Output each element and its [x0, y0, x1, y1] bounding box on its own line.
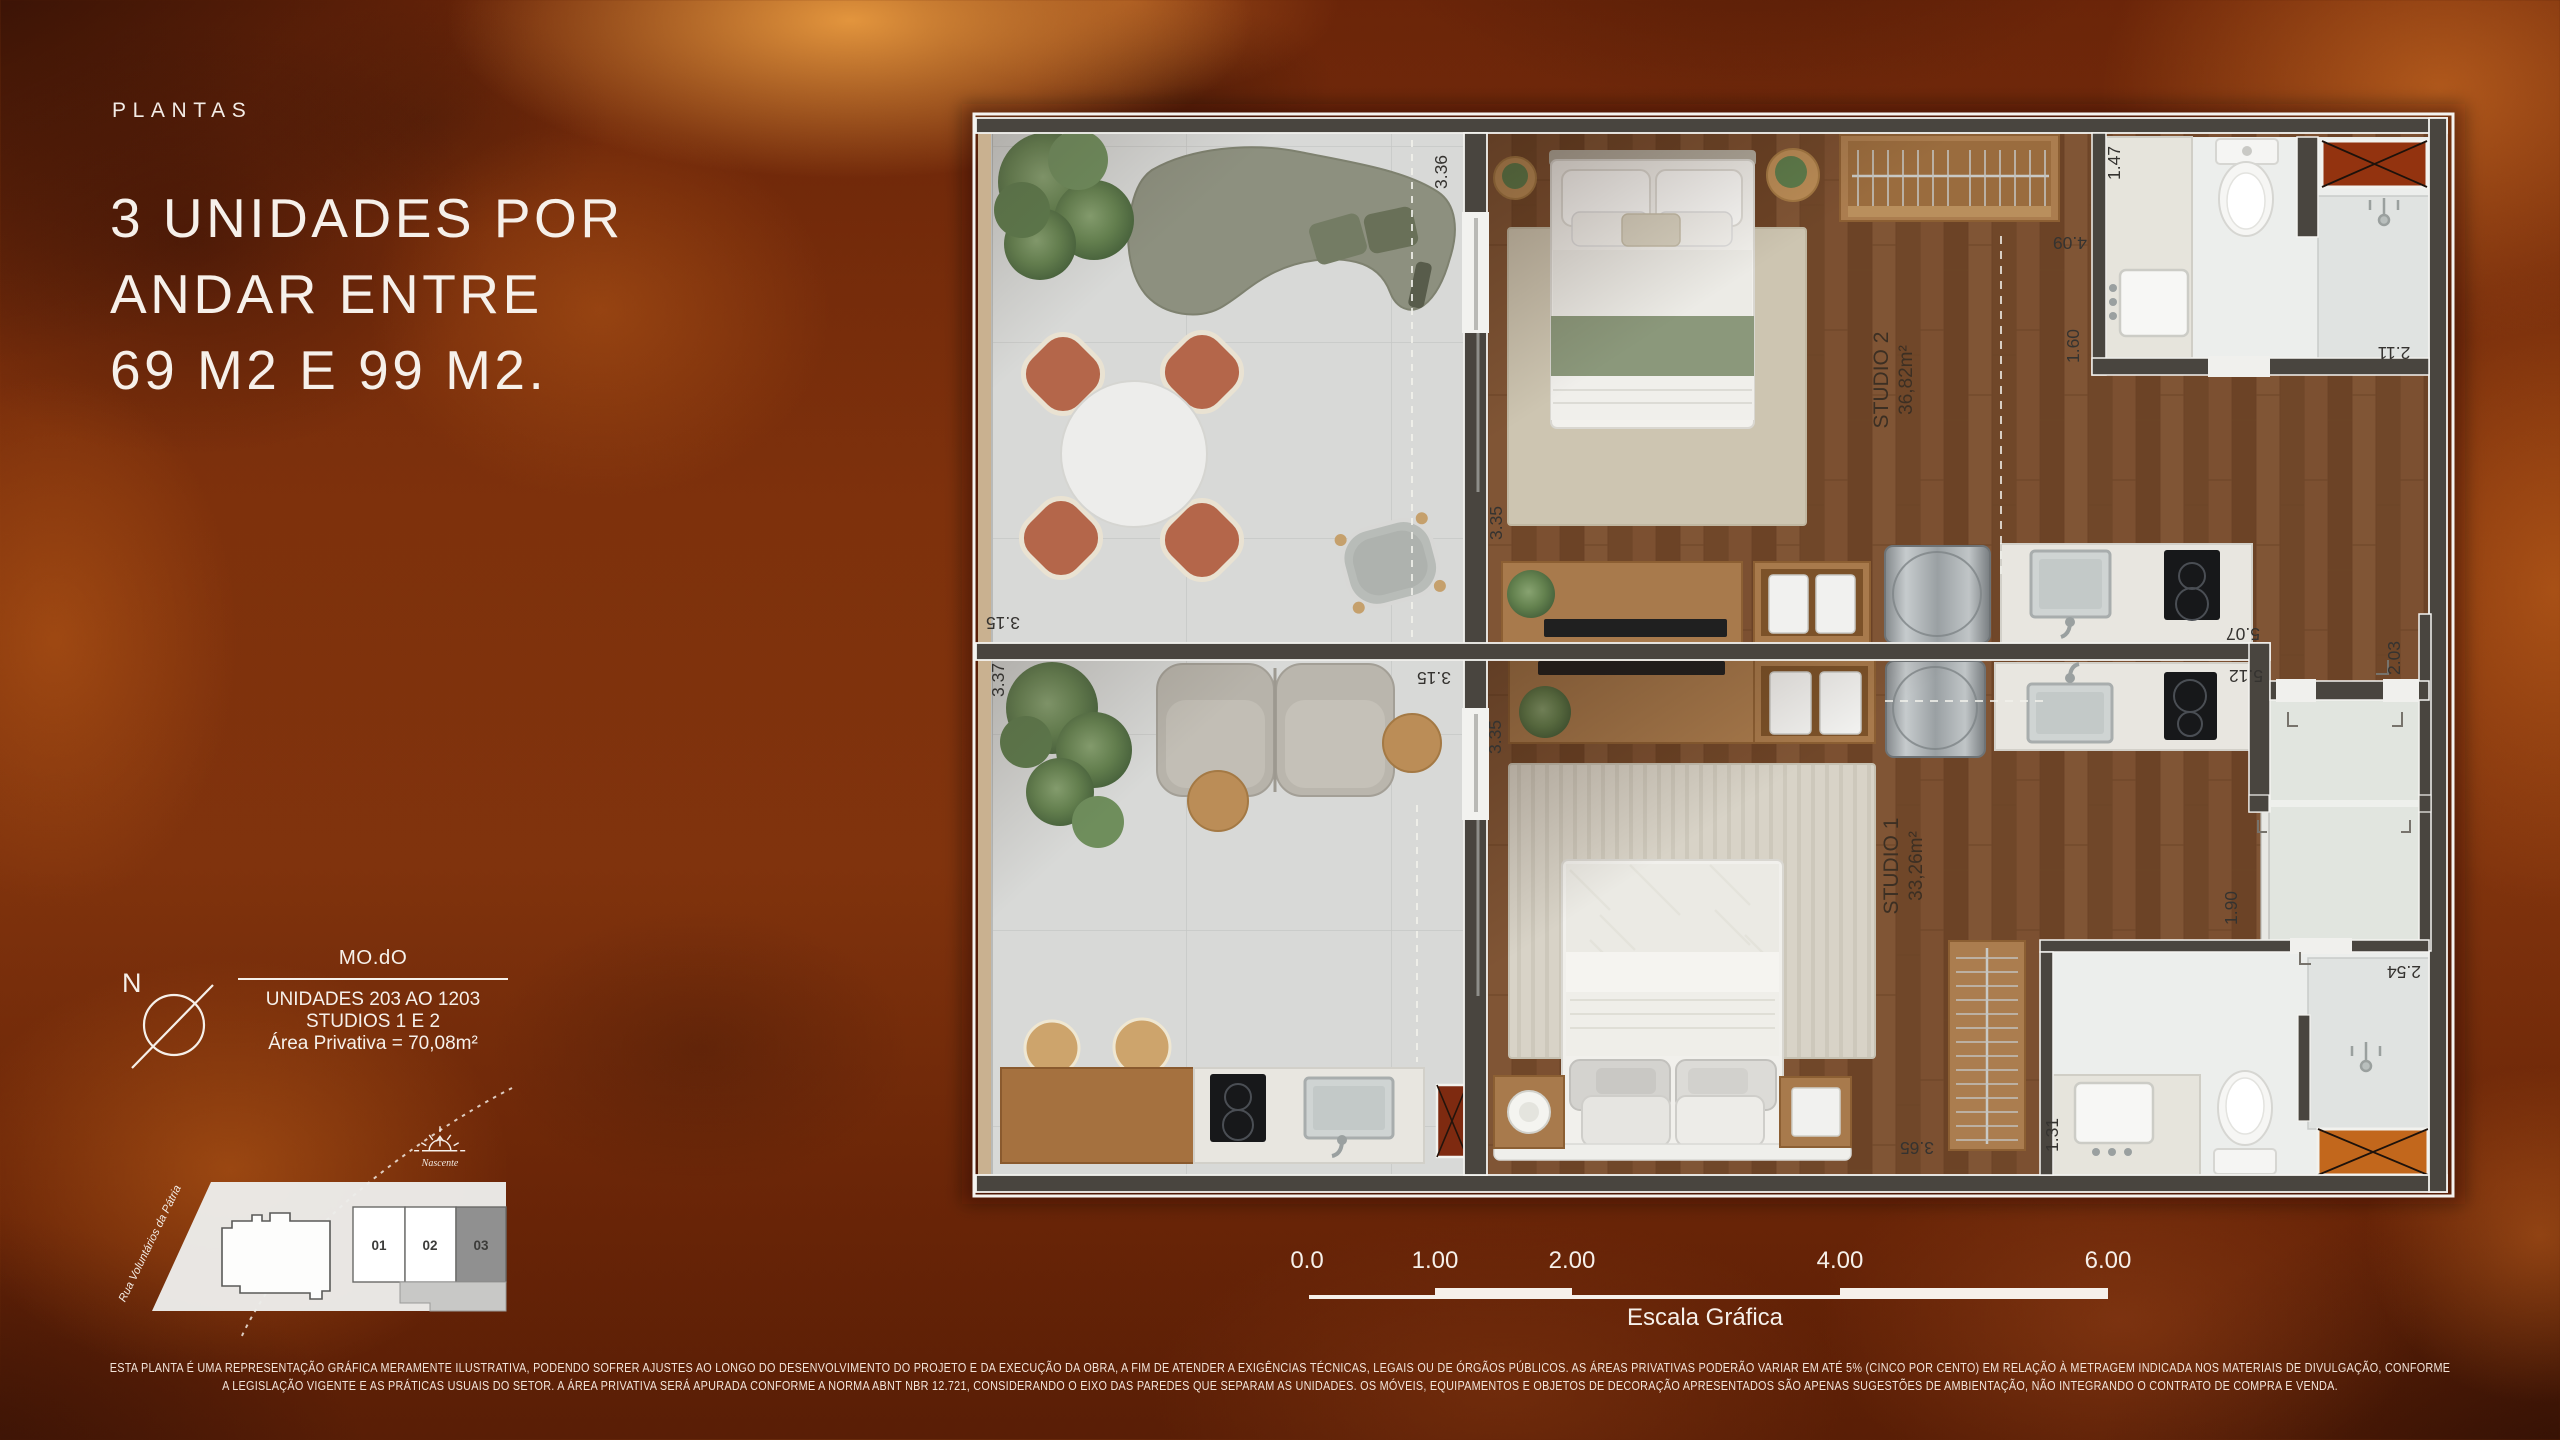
svg-text:3.15: 3.15 [986, 613, 1020, 633]
svg-text:1.31: 1.31 [2042, 1118, 2062, 1152]
svg-text:3.15: 3.15 [1417, 668, 1451, 688]
svg-text:1.60: 1.60 [2063, 329, 2083, 363]
svg-text:2.54: 2.54 [2387, 962, 2421, 982]
svg-text:3.37: 3.37 [988, 663, 1008, 697]
svg-text:5.12: 5.12 [2229, 666, 2263, 686]
svg-text:3.65: 3.65 [1900, 1138, 1934, 1158]
svg-text:1.47: 1.47 [2104, 146, 2124, 180]
svg-text:3.36: 3.36 [1431, 155, 1451, 189]
svg-text:3.35: 3.35 [1485, 720, 1505, 754]
svg-text:4.09: 4.09 [2053, 233, 2087, 253]
svg-text:1.90: 1.90 [2221, 891, 2241, 925]
svg-text:5.07: 5.07 [2226, 624, 2260, 644]
svg-text:2.11: 2.11 [2378, 343, 2411, 363]
svg-text:33,26m²: 33,26m² [1906, 831, 1927, 901]
svg-text:36,82m²: 36,82m² [1896, 345, 1917, 415]
svg-text:3.35: 3.35 [1486, 506, 1506, 540]
svg-text:STUDIO 1: STUDIO 1 [1880, 818, 1903, 915]
svg-text:STUDIO 2: STUDIO 2 [1870, 332, 1893, 429]
svg-text:2.03: 2.03 [2384, 641, 2404, 675]
